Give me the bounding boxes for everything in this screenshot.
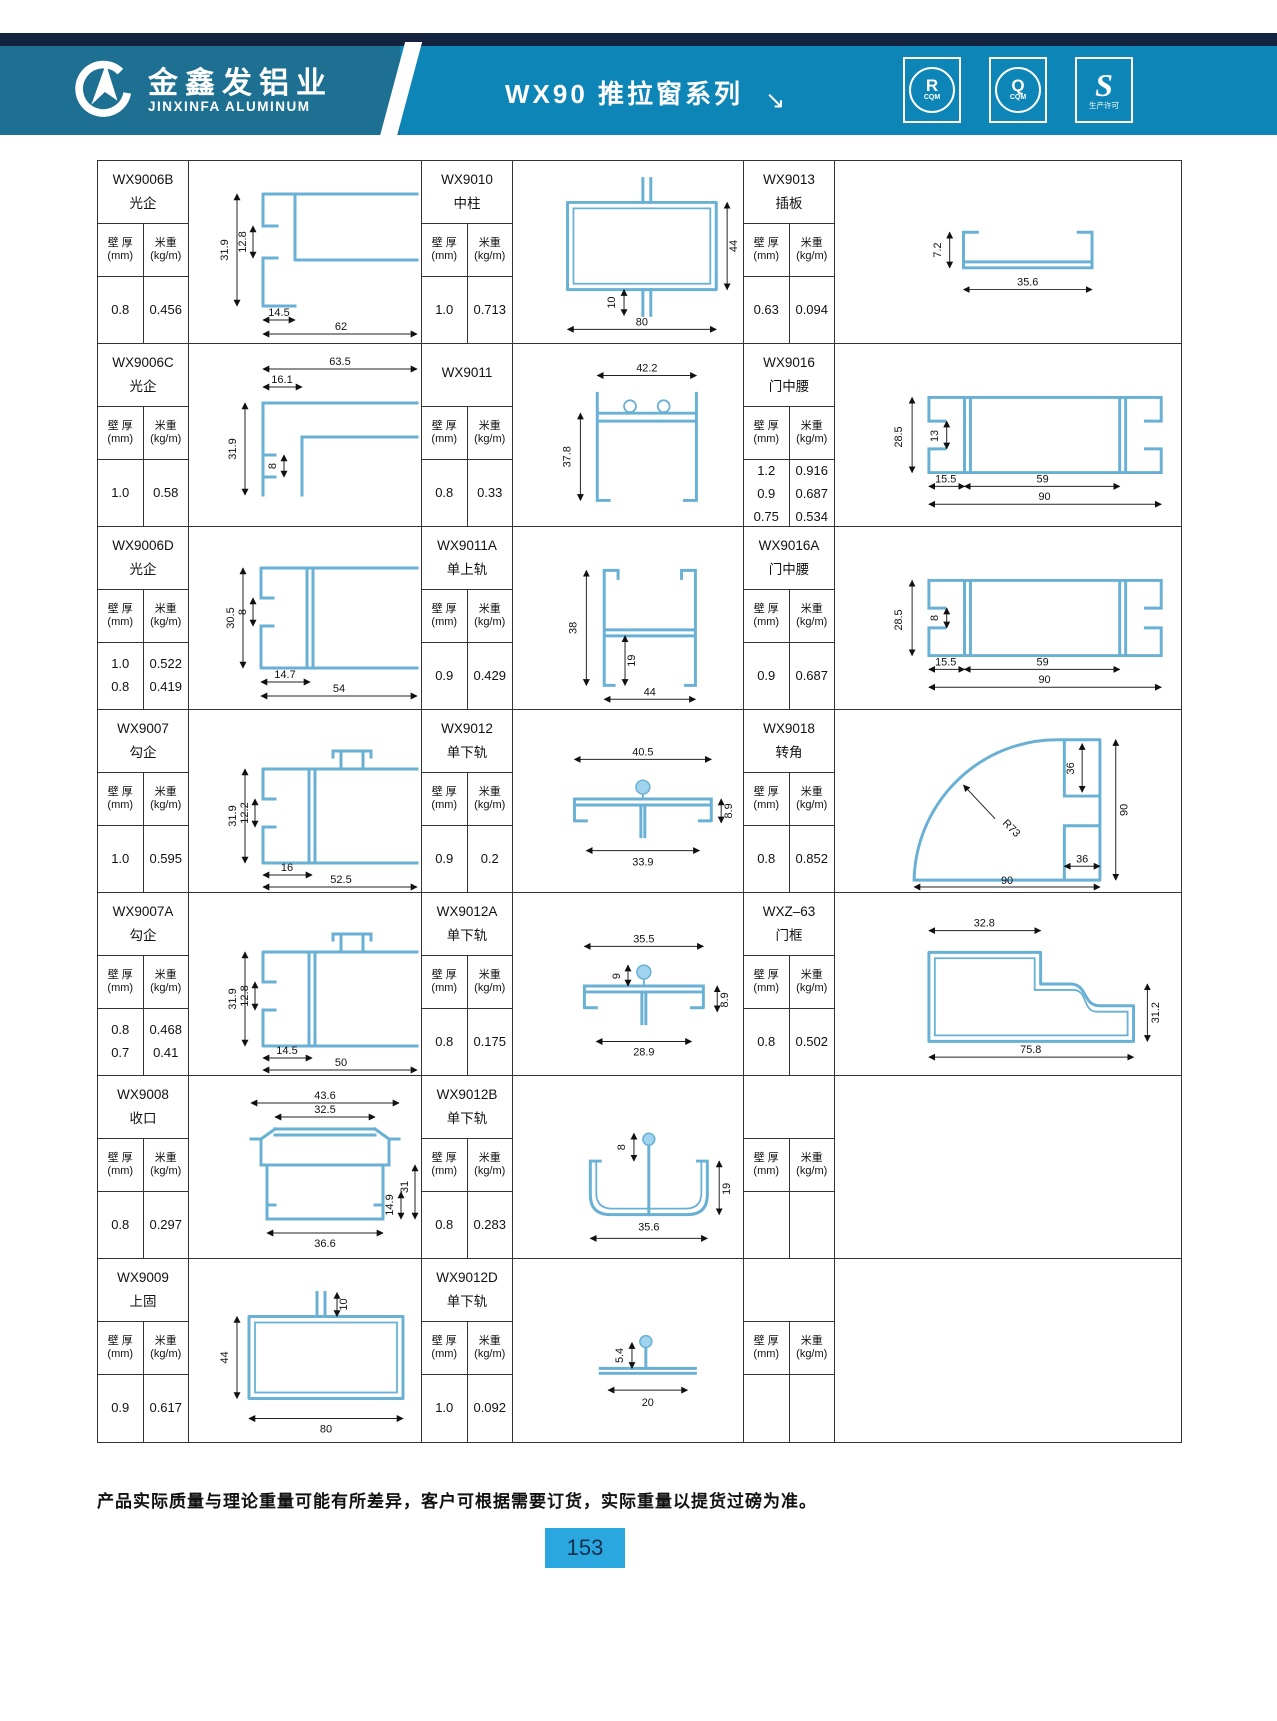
profile-cross-section: 10 44 80 (189, 1259, 421, 1442)
product-title (744, 1259, 834, 1322)
svg-text:12.2: 12.2 (239, 802, 251, 823)
product-cell-wx9012a: WX9012A 单下轨 壁 厚(mm) 米重(kg/m) 0.8 0.175 3… (422, 893, 744, 1076)
profile-drawing: 31.9 12.8 14.5 50 (189, 893, 421, 1075)
company-logo-icon (72, 60, 134, 122)
thickness-value: 0.8 (744, 1009, 790, 1075)
profile-drawing: 43.6 32.5 36.6 14.9 31 (189, 1076, 421, 1258)
cqm-q-badge: Q CQM (989, 57, 1047, 123)
info-table: WX9008 收口 壁 厚(mm) 米重(kg/m) 0.8 0.297 (98, 1076, 189, 1258)
svg-text:19: 19 (721, 1183, 733, 1195)
svg-text:43.6: 43.6 (314, 1090, 335, 1102)
info-table: WXZ–63 门框 壁 厚(mm) 米重(kg/m) 0.8 0.502 (744, 893, 835, 1075)
spec-values: 0.9 0.2 (422, 826, 512, 892)
weight-header: 米重(kg/m) (790, 407, 835, 459)
spec-header: 壁 厚(mm) 米重(kg/m) (98, 224, 188, 277)
svg-text:10: 10 (606, 296, 618, 308)
weight-value: 0.852 (790, 826, 835, 892)
svg-text:36.6: 36.6 (314, 1238, 335, 1250)
badge-sub: CQM (924, 94, 940, 102)
info-table: 壁 厚(mm) 米重(kg/m) (744, 1259, 835, 1442)
product-cell-wx9016a: WX9016A 门中腰 壁 厚(mm) 米重(kg/m) 0.9 0.687 2… (744, 527, 1181, 710)
info-table: WX9011 壁 厚(mm) 米重(kg/m) 0.8 0.33 (422, 344, 513, 526)
product-name: 上固 (130, 1290, 157, 1310)
certification-badges: R CQM Q CQM S 生产许可 (903, 57, 1133, 123)
svg-text:16: 16 (281, 862, 293, 874)
product-code: WXZ–63 (763, 904, 816, 919)
thickness-value: 0.9 (422, 826, 468, 892)
spec-values: 0.8 0.297 (98, 1192, 188, 1258)
thickness-header: 壁 厚(mm) (744, 407, 790, 459)
top-strip (0, 33, 1277, 46)
weight-value: 0.58 (144, 460, 189, 526)
thickness-header: 壁 厚(mm) (744, 590, 790, 642)
weight-value: 0.502 (790, 1009, 835, 1075)
svg-text:59: 59 (1037, 473, 1049, 485)
weight-value: 0.175 (468, 1009, 513, 1075)
weight-header: 米重(kg/m) (144, 1322, 189, 1374)
info-table: WX9013 插板 壁 厚(mm) 米重(kg/m) 0.63 0.094 (744, 161, 835, 343)
brand-band: 金鑫发铝业 JINXINFA ALUMINUM (0, 46, 400, 135)
svg-text:20: 20 (642, 1397, 654, 1409)
profile-cross-section: 63.5 16.1 31.9 8 (189, 344, 421, 526)
page-number: 153 (545, 1528, 625, 1568)
product-code: WX9018 (763, 721, 815, 736)
weight-header: 米重(kg/m) (144, 956, 189, 1008)
thickness-value: 1.0 0.8 (98, 643, 144, 709)
weight-value (790, 1192, 835, 1258)
product-code: WX9006D (112, 538, 174, 553)
spec-header: 壁 厚(mm) 米重(kg/m) (98, 773, 188, 826)
svg-text:59: 59 (1037, 656, 1049, 668)
thickness-value: 0.9 (98, 1375, 144, 1442)
spec-values: 0.9 0.617 (98, 1375, 188, 1442)
product-name: 单下轨 (447, 924, 488, 944)
spec-values: 0.8 0.33 (422, 460, 512, 526)
product-code: WX9011A (437, 538, 497, 553)
thickness-header: 壁 厚(mm) (744, 773, 790, 825)
spec-header: 壁 厚(mm) 米重(kg/m) (744, 590, 834, 643)
product-code: WX9013 (763, 172, 815, 187)
product-name: 勾企 (130, 924, 157, 944)
profile-cross-section: 7.2 35.6 (835, 161, 1181, 343)
production-license-badge: S 生产许可 (1075, 57, 1133, 123)
svg-text:8: 8 (267, 463, 279, 469)
thickness-header: 壁 厚(mm) (422, 224, 468, 276)
product-title: WX9012 单下轨 (422, 710, 512, 773)
product-title: WX9012A 单下轨 (422, 893, 512, 956)
info-table: WX9012A 单下轨 壁 厚(mm) 米重(kg/m) 0.8 0.175 (422, 893, 513, 1075)
weight-value: 0.595 (144, 826, 189, 892)
profile-cross-section: 44 10 80 (513, 161, 743, 343)
profile-catalog-grid: WX9006B 光企 壁 厚(mm) 米重(kg/m) 0.8 0.456 31… (97, 160, 1182, 1443)
spec-header: 壁 厚(mm) 米重(kg/m) (744, 407, 834, 460)
spec-values: 1.0 0.8 0.522 0.419 (98, 643, 188, 709)
product-title: WX9013 插板 (744, 161, 834, 224)
profile-drawing: 10 44 80 (189, 1259, 421, 1442)
spec-values (744, 1375, 834, 1442)
svg-text:14.5: 14.5 (268, 307, 289, 319)
thickness-value: 1.0 (422, 277, 468, 343)
badge-sub: 生产许可 (1089, 101, 1119, 112)
product-cell-wx9018: WX9018 转角 壁 厚(mm) 米重(kg/m) 0.8 0.852 R73… (744, 710, 1181, 893)
svg-text:8: 8 (237, 609, 249, 615)
profile-cross-section: 42.2 37.8 (513, 344, 743, 526)
info-table: WX9006D 光企 壁 厚(mm) 米重(kg/m) 1.0 0.8 0.52… (98, 527, 189, 709)
product-code: WX9016 (763, 355, 815, 370)
weight-header: 米重(kg/m) (144, 1139, 189, 1191)
cqm-r-badge: R CQM (903, 57, 961, 123)
empty-cell: 壁 厚(mm) 米重(kg/m) (744, 1259, 1181, 1442)
weight-header: 米重(kg/m) (468, 1139, 513, 1191)
thickness-header: 壁 厚(mm) (98, 1139, 144, 1191)
svg-text:31.9: 31.9 (227, 805, 239, 826)
product-title (744, 1076, 834, 1139)
svg-text:8.9: 8.9 (723, 803, 735, 818)
weight-value: 0.456 (144, 277, 189, 343)
thickness-header: 壁 厚(mm) (744, 224, 790, 276)
svg-text:35.6: 35.6 (1017, 277, 1038, 289)
product-cell-wx9011: WX9011 壁 厚(mm) 米重(kg/m) 0.8 0.33 42.2 37… (422, 344, 744, 527)
product-code: WX9012A (437, 904, 498, 919)
product-code: WX9007 (117, 721, 169, 736)
spec-header: 壁 厚(mm) 米重(kg/m) (98, 956, 188, 1009)
thickness-value: 1.0 (98, 460, 144, 526)
product-code: WX9006B (113, 172, 174, 187)
spec-values: 1.0 0.58 (98, 460, 188, 526)
product-code: WX9006C (112, 355, 174, 370)
svg-text:90: 90 (1001, 875, 1013, 887)
svg-text:90: 90 (1039, 674, 1051, 686)
svg-text:90: 90 (1039, 491, 1051, 503)
spec-values: 1.0 0.713 (422, 277, 512, 343)
svg-text:15.5: 15.5 (935, 473, 956, 485)
thickness-value: 0.8 (744, 826, 790, 892)
profile-drawing: 31.9 12.8 14.5 62 (189, 161, 421, 343)
profile-cross-section: 8 35.6 19 (513, 1076, 743, 1258)
thickness-value: 0.8 (422, 1009, 468, 1075)
svg-text:62: 62 (335, 321, 347, 333)
product-cell-wx9010: WX9010 中柱 壁 厚(mm) 米重(kg/m) 1.0 0.713 44 … (422, 161, 744, 344)
spec-header: 壁 厚(mm) 米重(kg/m) (98, 407, 188, 460)
svg-text:12.8: 12.8 (239, 985, 251, 1006)
spec-header: 壁 厚(mm) 米重(kg/m) (422, 773, 512, 826)
product-name: 光企 (130, 375, 157, 395)
product-cell-wx9012b: WX9012B 单下轨 壁 厚(mm) 米重(kg/m) 0.8 0.283 8… (422, 1076, 744, 1259)
badge-letter: S (1095, 69, 1113, 101)
cqm-q-circle-icon: Q CQM (995, 67, 1041, 113)
badge-letter: Q (1011, 77, 1024, 94)
spec-values: 0.8 0.283 (422, 1192, 512, 1258)
svg-text:5.4: 5.4 (614, 1348, 626, 1363)
product-cell-wx9016: WX9016 门中腰 壁 厚(mm) 米重(kg/m) 1.2 0.9 0.75… (744, 344, 1181, 527)
thickness-value: 0.9 (422, 643, 468, 709)
svg-text:42.2: 42.2 (636, 363, 657, 375)
spec-values: 0.63 0.094 (744, 277, 834, 343)
spec-values: 0.8 0.7 0.468 0.41 (98, 1009, 188, 1075)
page-title-text: WX90 推拉窗系列 (505, 79, 743, 109)
thickness-header: 壁 厚(mm) (422, 956, 468, 1008)
profile-cross-section: R73 36 90 36 90 (835, 710, 1181, 892)
profile-drawing: 8 35.6 19 (513, 1076, 743, 1258)
profile-drawing: 38 19 44 (513, 527, 743, 709)
thickness-value: 0.8 (98, 277, 144, 343)
profile-cross-section: 28.5 13 15.5 59 90 (835, 344, 1181, 526)
title-arrow-icon: ↘ (765, 86, 788, 115)
product-code: WX9008 (117, 1087, 169, 1102)
brand-text: 金鑫发铝业 JINXINFA ALUMINUM (148, 67, 333, 115)
svg-text:44: 44 (644, 686, 656, 698)
weight-value: 0.468 0.41 (144, 1009, 189, 1075)
spec-values: 0.9 0.687 (744, 643, 834, 709)
product-code: WX9009 (117, 1270, 169, 1285)
weight-value (790, 1375, 835, 1442)
svg-text:9: 9 (611, 973, 623, 979)
page-title: WX90 推拉窗系列↘ (505, 74, 788, 111)
thickness-header: 壁 厚(mm) (744, 956, 790, 1008)
thickness-value: 0.8 (98, 1192, 144, 1258)
svg-text:19: 19 (626, 655, 638, 667)
weight-value: 0.094 (790, 277, 835, 343)
profile-drawing: 63.5 16.1 31.9 8 (189, 344, 421, 526)
svg-text:12.8: 12.8 (237, 231, 249, 252)
product-title: WXZ–63 门框 (744, 893, 834, 956)
weight-value: 0.617 (144, 1375, 189, 1442)
profile-cross-section: 30.5 8 14.7 54 (189, 527, 421, 709)
product-title: WX9011A 单上轨 (422, 527, 512, 590)
product-title: WX9007A 勾企 (98, 893, 188, 956)
thickness-header: 壁 厚(mm) (744, 1139, 790, 1191)
spec-values: 0.8 0.456 (98, 277, 188, 343)
svg-text:50: 50 (335, 1057, 347, 1069)
weight-value: 0.713 (468, 277, 513, 343)
svg-text:38: 38 (567, 622, 579, 634)
product-name: 单上轨 (447, 558, 488, 578)
profile-cross-section: 5.4 20 (513, 1259, 743, 1442)
weight-header: 米重(kg/m) (790, 956, 835, 1008)
product-cell-wx9011a: WX9011A 单上轨 壁 厚(mm) 米重(kg/m) 0.9 0.429 3… (422, 527, 744, 710)
spec-values: 0.8 0.502 (744, 1009, 834, 1075)
profile-cross-section: 31.9 12.8 14.5 62 (189, 161, 421, 343)
weight-value: 0.092 (468, 1375, 513, 1442)
svg-text:14.5: 14.5 (276, 1045, 297, 1057)
svg-text:54: 54 (333, 683, 345, 695)
product-title: WX9016 门中腰 (744, 344, 834, 407)
profile-cross-section: 31.9 12.2 16 52.5 (189, 710, 421, 892)
product-code: WX9011 (442, 365, 493, 380)
profile-drawing: 7.2 35.6 (835, 161, 1181, 343)
svg-text:90: 90 (1119, 804, 1131, 816)
spec-values: 0.9 0.429 (422, 643, 512, 709)
profile-cross-section: 40.5 33.9 8.9 (513, 710, 743, 892)
spec-header: 壁 厚(mm) 米重(kg/m) (744, 1322, 834, 1375)
profile-drawing: R73 36 90 36 90 (835, 710, 1181, 892)
svg-text:31.9: 31.9 (227, 438, 239, 459)
svg-text:37.8: 37.8 (562, 446, 574, 467)
weight-value: 0.297 (144, 1192, 189, 1258)
spec-values: 0.8 0.175 (422, 1009, 512, 1075)
weight-header: 米重(kg/m) (790, 1139, 835, 1191)
product-title: WX9007 勾企 (98, 710, 188, 773)
weight-value: 0.916 0.687 0.534 (790, 460, 835, 527)
info-table: WX9010 中柱 壁 厚(mm) 米重(kg/m) 1.0 0.713 (422, 161, 513, 343)
product-title: WX9018 转角 (744, 710, 834, 773)
brand-name-en: JINXINFA ALUMINUM (148, 100, 333, 115)
svg-text:16.1: 16.1 (271, 374, 292, 386)
svg-text:33.9: 33.9 (632, 856, 653, 868)
product-title: WX9010 中柱 (422, 161, 512, 224)
spec-header: 壁 厚(mm) 米重(kg/m) (422, 224, 512, 277)
product-code: WX9012B (437, 1087, 498, 1102)
svg-text:14.9: 14.9 (384, 1194, 396, 1215)
product-cell-wx9012: WX9012 单下轨 壁 厚(mm) 米重(kg/m) 0.9 0.2 40.5… (422, 710, 744, 893)
product-cell-wx9007: WX9007 勾企 壁 厚(mm) 米重(kg/m) 1.0 0.595 31.… (98, 710, 422, 893)
weight-header: 米重(kg/m) (468, 956, 513, 1008)
svg-text:15.5: 15.5 (935, 656, 956, 668)
empty-cell: 壁 厚(mm) 米重(kg/m) (744, 1076, 1181, 1259)
thickness-value: 1.2 0.9 0.75 (744, 460, 790, 527)
profile-cross-section: 43.6 32.5 36.6 14.9 31 (189, 1076, 421, 1258)
svg-text:8: 8 (929, 615, 941, 621)
svg-text:75.8: 75.8 (1020, 1044, 1041, 1056)
info-table: WX9018 转角 壁 厚(mm) 米重(kg/m) 0.8 0.852 (744, 710, 835, 892)
thickness-value: 0.9 (744, 643, 790, 709)
info-table: WX9011A 单上轨 壁 厚(mm) 米重(kg/m) 0.9 0.429 (422, 527, 513, 709)
spec-values: 0.8 0.852 (744, 826, 834, 892)
info-table: WX9016A 门中腰 壁 厚(mm) 米重(kg/m) 0.9 0.687 (744, 527, 835, 709)
product-cell-wxz63: WXZ–63 门框 壁 厚(mm) 米重(kg/m) 0.8 0.502 32.… (744, 893, 1181, 1076)
profile-drawing: 5.4 20 (513, 1259, 743, 1442)
product-name: 转角 (776, 741, 803, 761)
svg-text:80: 80 (320, 1424, 332, 1436)
thickness-header: 壁 厚(mm) (98, 224, 144, 276)
product-code: WX9010 (441, 172, 493, 187)
product-cell-wx9013: WX9013 插板 壁 厚(mm) 米重(kg/m) 0.63 0.094 7.… (744, 161, 1181, 344)
profile-drawing: 40.5 33.9 8.9 (513, 710, 743, 892)
svg-text:40.5: 40.5 (632, 746, 653, 758)
weight-value: 0.429 (468, 643, 513, 709)
info-table: 壁 厚(mm) 米重(kg/m) (744, 1076, 835, 1258)
info-table: WX9012 单下轨 壁 厚(mm) 米重(kg/m) 0.9 0.2 (422, 710, 513, 892)
weight-header: 米重(kg/m) (468, 1322, 513, 1374)
info-table: WX9007 勾企 壁 厚(mm) 米重(kg/m) 1.0 0.595 (98, 710, 189, 892)
weight-header: 米重(kg/m) (468, 224, 513, 276)
thickness-value (744, 1375, 790, 1442)
svg-text:14.7: 14.7 (274, 669, 295, 681)
thickness-value: 0.8 0.7 (98, 1009, 144, 1075)
profile-drawing: 35.5 9 28.9 8.9 (513, 893, 743, 1075)
thickness-value: 0.8 (422, 1192, 468, 1258)
svg-text:31.9: 31.9 (219, 239, 231, 260)
spec-header: 壁 厚(mm) 米重(kg/m) (422, 590, 512, 643)
spec-header: 壁 厚(mm) 米重(kg/m) (98, 1139, 188, 1192)
weight-header: 米重(kg/m) (468, 773, 513, 825)
svg-text:44: 44 (728, 240, 740, 252)
product-code: WX9012D (436, 1270, 498, 1285)
weight-header: 米重(kg/m) (144, 224, 189, 276)
thickness-header: 壁 厚(mm) (98, 407, 144, 459)
product-name: 光企 (130, 192, 157, 212)
cqm-r-circle-icon: R CQM (909, 67, 955, 113)
svg-text:R73: R73 (1000, 817, 1023, 840)
product-cell-wx9008: WX9008 收口 壁 厚(mm) 米重(kg/m) 0.8 0.297 43.… (98, 1076, 422, 1259)
product-title: WX9012D 单下轨 (422, 1259, 512, 1322)
product-name: 光企 (130, 558, 157, 578)
product-title: WX9006B 光企 (98, 161, 188, 224)
svg-text:35.5: 35.5 (633, 933, 654, 945)
profile-drawing: 32.8 31.2 75.8 (835, 893, 1181, 1075)
profile-drawing-empty (835, 1076, 1181, 1258)
weight-value: 0.2 (468, 826, 513, 892)
info-table: WX9016 门中腰 壁 厚(mm) 米重(kg/m) 1.2 0.9 0.75… (744, 344, 835, 526)
product-title: WX9016A 门中腰 (744, 527, 834, 590)
svg-text:63.5: 63.5 (329, 356, 350, 368)
product-name: 单下轨 (447, 741, 488, 761)
product-title: WX9008 收口 (98, 1076, 188, 1139)
spec-values: 1.0 0.595 (98, 826, 188, 892)
thickness-header: 壁 厚(mm) (98, 590, 144, 642)
product-cell-wx9007a: WX9007A 勾企 壁 厚(mm) 米重(kg/m) 0.8 0.7 0.46… (98, 893, 422, 1076)
product-cell-wx9006c: WX9006C 光企 壁 厚(mm) 米重(kg/m) 1.0 0.58 63.… (98, 344, 422, 527)
badge-letter: R (926, 77, 938, 94)
product-name: 单下轨 (447, 1107, 488, 1127)
spec-header: 壁 厚(mm) 米重(kg/m) (98, 1322, 188, 1375)
weight-value: 0.687 (790, 643, 835, 709)
thickness-header: 壁 厚(mm) (422, 1322, 468, 1374)
svg-text:28.5: 28.5 (893, 426, 905, 447)
info-table: WX9009 上固 壁 厚(mm) 米重(kg/m) 0.9 0.617 (98, 1259, 189, 1442)
profile-drawing: 44 10 80 (513, 161, 743, 343)
profile-drawing: 30.5 8 14.7 54 (189, 527, 421, 709)
weight-header: 米重(kg/m) (468, 407, 513, 459)
product-cell-wx9012d: WX9012D 单下轨 壁 厚(mm) 米重(kg/m) 1.0 0.092 5… (422, 1259, 744, 1442)
spec-header: 壁 厚(mm) 米重(kg/m) (744, 1139, 834, 1192)
svg-text:8.9: 8.9 (719, 992, 731, 1007)
profile-cross-section: 35.5 9 28.9 8.9 (513, 893, 743, 1075)
info-table: WX9006C 光企 壁 厚(mm) 米重(kg/m) 1.0 0.58 (98, 344, 189, 526)
svg-text:28.9: 28.9 (633, 1046, 654, 1058)
product-title: WX9006C 光企 (98, 344, 188, 407)
product-name: 收口 (130, 1107, 157, 1127)
svg-text:31: 31 (399, 1181, 411, 1193)
spec-header: 壁 厚(mm) 米重(kg/m) (744, 224, 834, 277)
profile-cross-section: 28.5 8 15.5 59 90 (835, 527, 1181, 709)
profile-drawing: 28.5 8 15.5 59 90 (835, 527, 1181, 709)
profile-drawing: 31.9 12.2 16 52.5 (189, 710, 421, 892)
svg-text:36: 36 (1076, 853, 1088, 865)
page-header: 金鑫发铝业 JINXINFA ALUMINUM WX90 推拉窗系列↘ R CQ… (0, 46, 1277, 135)
thickness-value: 1.0 (98, 826, 144, 892)
thickness-header: 壁 厚(mm) (422, 773, 468, 825)
profile-cross-section: 31.9 12.8 14.5 50 (189, 893, 421, 1075)
svg-text:32.8: 32.8 (974, 918, 995, 930)
brand-name-cn: 金鑫发铝业 (148, 67, 333, 100)
svg-text:44: 44 (219, 1351, 231, 1363)
thickness-value (744, 1192, 790, 1258)
thickness-value: 0.8 (422, 460, 468, 526)
thickness-header: 壁 厚(mm) (98, 773, 144, 825)
svg-text:13: 13 (929, 430, 941, 442)
svg-text:35.6: 35.6 (638, 1221, 659, 1233)
product-name: 中柱 (454, 192, 481, 212)
svg-text:7.2: 7.2 (932, 242, 944, 257)
thickness-header: 壁 厚(mm) (744, 1322, 790, 1374)
svg-text:32.5: 32.5 (314, 1104, 335, 1116)
product-code: WX9012 (441, 721, 493, 736)
profile-drawing-empty (835, 1259, 1181, 1442)
thickness-header: 壁 厚(mm) (98, 956, 144, 1008)
thickness-header: 壁 厚(mm) (422, 407, 468, 459)
product-cell-wx9009: WX9009 上固 壁 厚(mm) 米重(kg/m) 0.9 0.617 10 … (98, 1259, 422, 1442)
